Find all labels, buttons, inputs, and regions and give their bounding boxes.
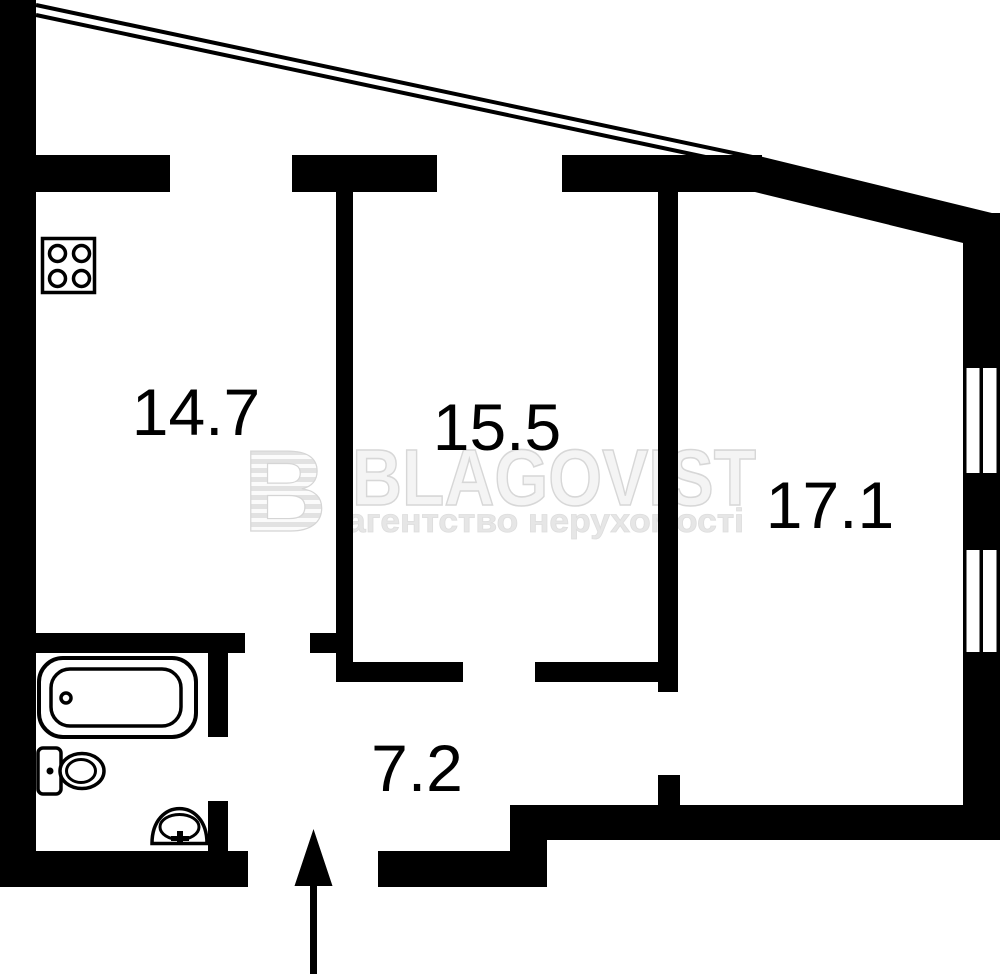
- stove-burner: [74, 271, 90, 287]
- bathtub-icon: [39, 658, 196, 737]
- room-label-right-room: 17.1: [766, 468, 894, 542]
- stove-burner: [50, 246, 66, 262]
- window-line: [963, 550, 967, 652]
- window-icon-lower: [963, 550, 1000, 652]
- wall-top-segment-2: [292, 155, 437, 192]
- wall-bottom-left: [0, 851, 248, 887]
- wall-bathroom-top-stub: [310, 633, 337, 653]
- wall-bathroom-top: [30, 633, 245, 653]
- wall-left: [0, 0, 36, 887]
- wall-bathroom-right-lower: [208, 801, 228, 853]
- window-line: [997, 368, 1000, 473]
- toilet-icon: [38, 748, 104, 794]
- wall-bottom-right: [510, 805, 963, 840]
- wall-top-segment-3: [562, 155, 762, 192]
- wall-room-middle-bottom-left: [336, 662, 463, 682]
- entrance-arrow-shaft: [310, 878, 317, 974]
- room-label-kitchen: 14.7: [132, 375, 260, 449]
- room-label-hallway: 7.2: [371, 731, 463, 805]
- window-line: [963, 368, 967, 473]
- sink-tap-cross: [171, 836, 189, 841]
- window-line: [980, 550, 984, 652]
- wall-divider-rooms-stub: [658, 775, 680, 807]
- wall-bathroom-right-upper: [208, 653, 228, 737]
- window-line: [997, 550, 1000, 652]
- floor-plan-page: B BLAGOVIST агентство нерухомості: [0, 0, 1000, 974]
- stove-icon: [43, 239, 95, 293]
- window-line: [980, 368, 984, 473]
- stove-burner: [50, 271, 66, 287]
- wall-divider-kitchen-room: [336, 192, 353, 682]
- wall-top-segment-1: [36, 155, 170, 192]
- room-label-middle-room: 15.5: [433, 390, 561, 464]
- wall-divider-rooms: [658, 192, 678, 692]
- wall-room-middle-bottom-right: [535, 662, 678, 682]
- window-icon-upper: [963, 368, 1000, 473]
- toilet-button: [47, 768, 54, 775]
- bathtub-drain: [61, 693, 71, 703]
- stove-burner: [74, 246, 90, 262]
- wall-right: [963, 213, 1000, 840]
- agency-tagline-text: агентство нерухомості: [346, 502, 744, 539]
- toilet-bowl-inner: [67, 760, 96, 783]
- floor-plan: B BLAGOVIST агентство нерухомості: [0, 0, 1000, 974]
